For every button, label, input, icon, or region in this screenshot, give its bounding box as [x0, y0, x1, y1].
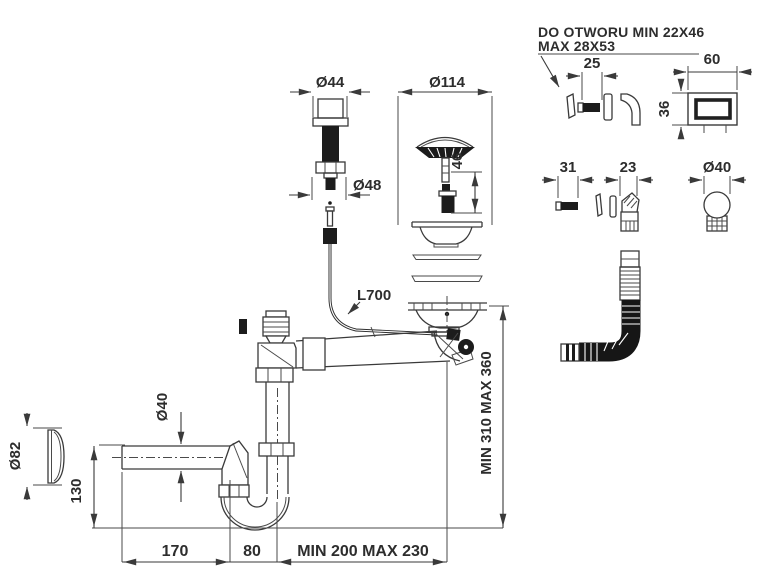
dim-label-elbow-width: 23: [620, 159, 637, 176]
dim-label-installation-height: MIN 310 MAX 360: [478, 351, 495, 474]
dim-label-screw-length: 31: [560, 159, 577, 176]
dim-label-knob-diameter: Ø44: [316, 74, 345, 91]
dim-label-outlet-length: MIN 200 MAX 230: [297, 543, 429, 560]
dim-label-cover-width: 60: [704, 51, 721, 68]
dim-label-trap-depth: 130: [68, 478, 85, 503]
dim-label-strainer-diameter: Ø114: [429, 74, 466, 91]
dim-label-cover-height: 36: [656, 101, 673, 118]
overflow-kit: [538, 54, 752, 231]
note-line2: MAX 28X53: [538, 38, 615, 54]
dim-label-trap-offset: 80: [243, 543, 261, 560]
dim-label-pipe-diameter: Ø40: [154, 393, 171, 421]
dim-label-cable-length: L700: [357, 287, 391, 304]
flexible-overflow-hose: [561, 251, 640, 361]
dim-label-plug-length: 46: [449, 153, 466, 170]
labels: DO OTWORU MIN 22X46 MAX 28X53 Ø44 Ø114 Ø…: [7, 24, 731, 560]
popup-knob-assembly: [289, 92, 370, 244]
dim-label-cover-diameter: Ø82: [7, 442, 24, 470]
cleanout-cover: [27, 413, 64, 500]
dim-label-inlet-length: 170: [162, 543, 189, 560]
dim-label-ball-diameter: Ø40: [703, 159, 731, 176]
siphon-technical-drawing: DO OTWORU MIN 22X46 MAX 28X53 Ø44 Ø114 Ø…: [0, 0, 773, 584]
dim-label-thread-diameter: Ø48: [353, 177, 381, 194]
drawing-page: DO OTWORU MIN 22X46 MAX 28X53 Ø44 Ø114 Ø…: [0, 0, 773, 584]
dim-label-clip-width: 25: [584, 55, 601, 72]
strainer-assembly: [398, 92, 492, 282]
